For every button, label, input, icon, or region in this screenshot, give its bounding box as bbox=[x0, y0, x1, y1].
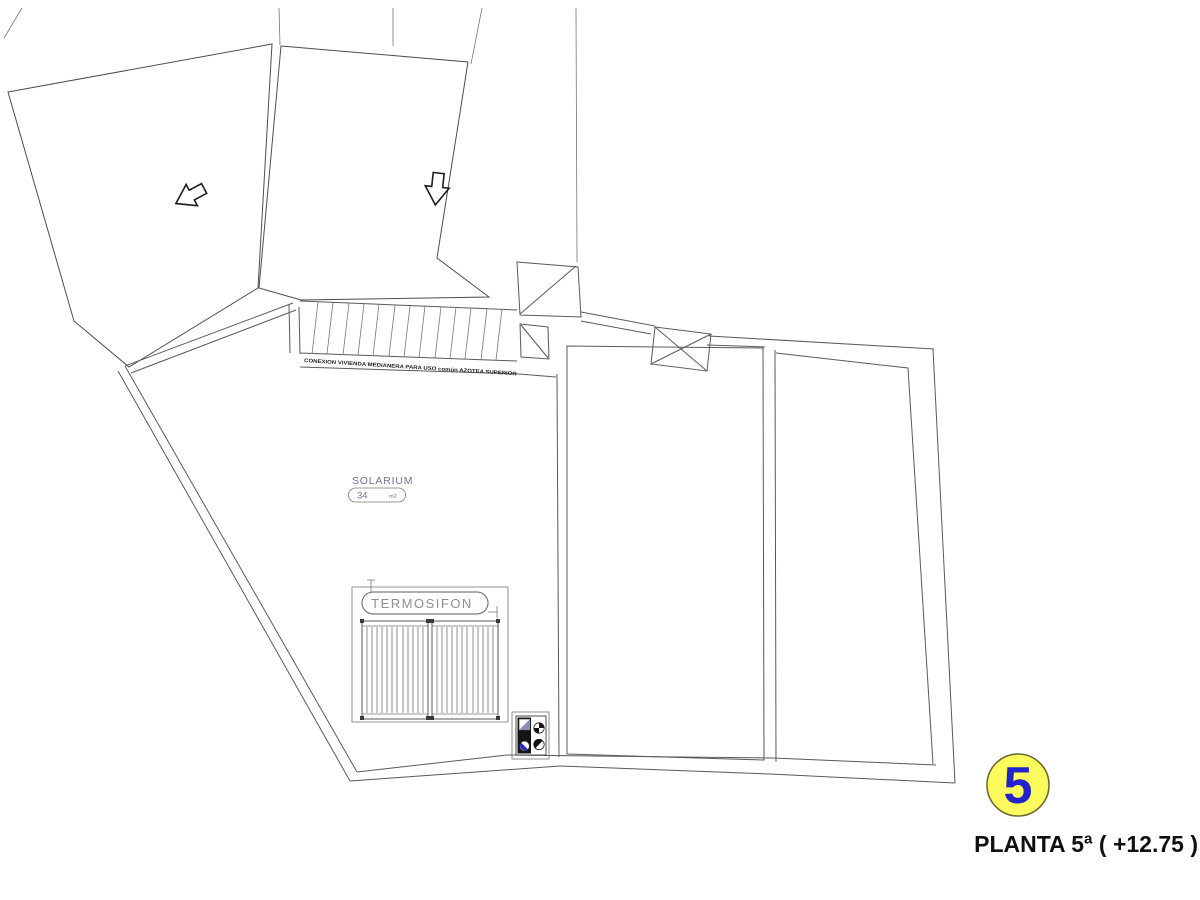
solarium-area-value: 34 bbox=[357, 491, 368, 502]
terrace-right bbox=[776, 349, 955, 783]
tank-pipe-right bbox=[488, 606, 497, 618]
boundary-construction-lines bbox=[4, 8, 577, 262]
terrace-middle bbox=[557, 346, 776, 762]
termosifon-assembly: TERMOSIFON bbox=[352, 580, 508, 722]
shaft-crossed-box bbox=[651, 327, 711, 371]
stair-landing bbox=[517, 262, 581, 377]
roof-slope-arrow-left-icon bbox=[170, 178, 210, 214]
top-wall bbox=[581, 312, 934, 349]
tiled-roof-left bbox=[8, 44, 272, 367]
stair-run: CONEXION VIVIENDA MEDIANERA PARA USO com… bbox=[289, 301, 519, 377]
panel-corner-fixings bbox=[360, 619, 500, 720]
solar-collector-left bbox=[362, 621, 428, 719]
floor-number-badge: 5 bbox=[987, 754, 1049, 816]
tiled-roof-right bbox=[259, 46, 489, 300]
badge-number: 5 bbox=[1004, 757, 1033, 815]
plan-caption: PLANTA 5ª ( +12.75 ) bbox=[974, 831, 1198, 857]
tank-pipe-left bbox=[367, 580, 375, 592]
floor-plan-page: CONEXION VIVIENDA MEDIANERA PARA USO com… bbox=[0, 0, 1200, 900]
solar-collector-right bbox=[432, 621, 498, 719]
solarium-title: SOLARIUM bbox=[352, 475, 413, 487]
solarium-area-unit: m2 bbox=[389, 494, 397, 500]
legend-symbol-block bbox=[512, 712, 549, 759]
stair-treads bbox=[312, 302, 502, 360]
termosifon-label: TERMOSIFON bbox=[371, 596, 473, 611]
floor-plan-canvas: CONEXION VIVIENDA MEDIANERA PARA USO com… bbox=[0, 0, 1200, 900]
roof-slope-arrow-right-icon bbox=[423, 172, 450, 206]
solarium-label-group: SOLARIUM 34 m2 bbox=[349, 475, 414, 502]
